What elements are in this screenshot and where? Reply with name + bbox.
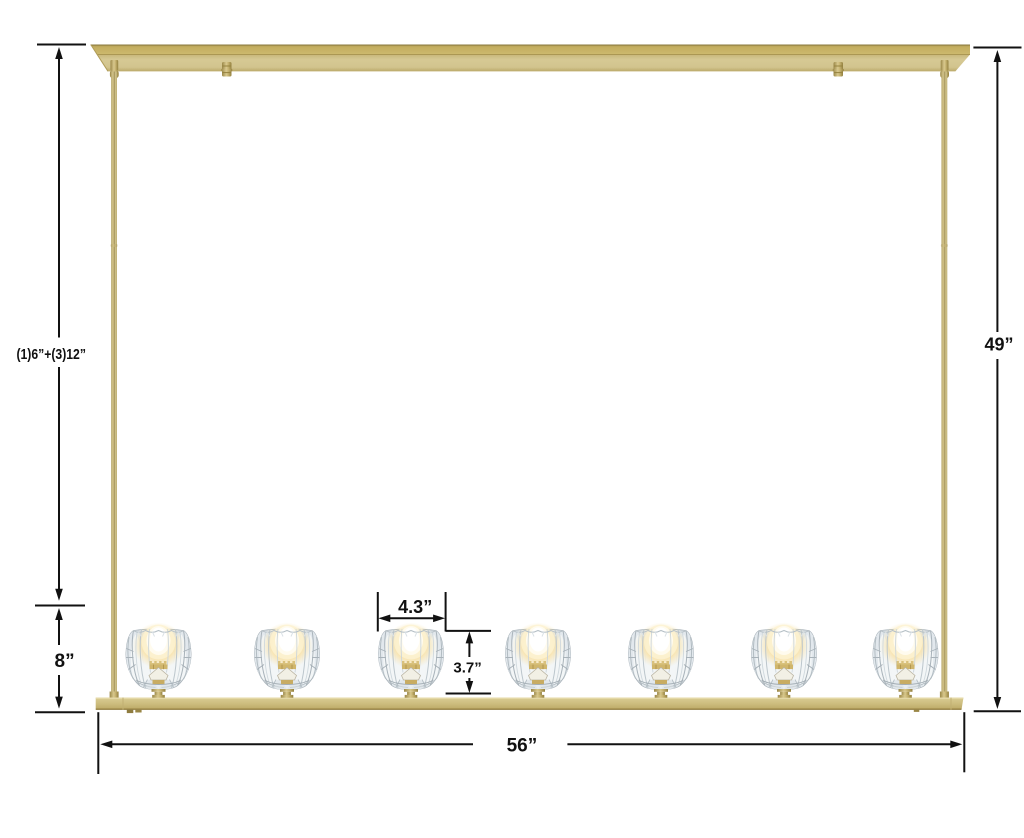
svg-text:3.7”: 3.7” — [453, 659, 481, 676]
svg-text:(1)6”+(3)12”: (1)6”+(3)12” — [16, 346, 86, 363]
svg-text:4.3”: 4.3” — [398, 597, 432, 617]
svg-text:8”: 8” — [55, 651, 75, 672]
svg-text:56”: 56” — [507, 736, 538, 757]
svg-text:49”: 49” — [984, 334, 1013, 354]
